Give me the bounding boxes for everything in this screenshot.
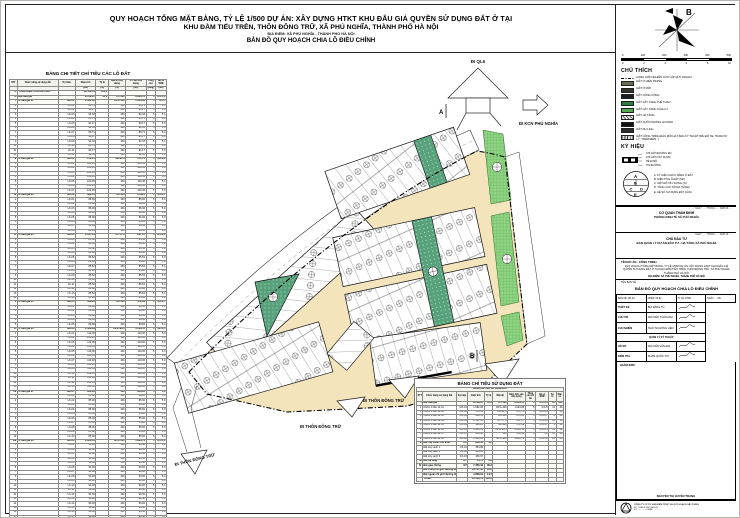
legend-label: ĐẤT HẠ TẦNG: [637, 114, 655, 117]
scale-tick: 500: [727, 54, 731, 57]
legend-label: ĐẤT CÔNG TRÌNH ĐẦU MỐI HẠ TẦNG KỸ THUẬT …: [637, 135, 733, 142]
section-marker-a: A: [439, 110, 444, 116]
company-contact: ĐT: ............ - EMAIL: ............: [634, 509, 699, 512]
header-row: STTChức năng sử dụng đấtKý hiệuDiện tích…: [10, 80, 167, 87]
plot-balloon-icon: A B C D E: [621, 169, 651, 199]
north-arrow: B: [649, 7, 705, 53]
scale-tick: 6: [686, 62, 687, 65]
label-thon-2: ĐI THÔN ĐÔNG TRỮ: [300, 424, 342, 429]
legend-swatch: [621, 108, 634, 113]
company-logo: [620, 502, 632, 514]
scale-bar: 0100200300400500 0246810: [621, 54, 732, 65]
signature-mark: [676, 323, 706, 333]
director-block: GIÁM ĐỐC NGUYỄN THỊ HUYỀN TRANG: [616, 362, 736, 500]
legend-label: ĐẤT QUỐC PHÒNG AN NINH: [637, 121, 673, 124]
legend-item-4: ĐẤT CÔNG CỘNG: [621, 94, 732, 99]
svg-text:B: B: [686, 8, 692, 17]
scale-tick: 0: [622, 54, 623, 57]
project-block: TÊN ĐỒ ÁN - CÔNG TRÌNH QUY HOẠCH TỔNG MẶ…: [616, 258, 736, 279]
scale-tick: 0: [622, 62, 623, 65]
land-use-table-section: BẢNG CHỈ TIÊU SỬ DỤNG ĐẤT BẢNG CHỈ TIÊU …: [414, 378, 566, 484]
land-use-table: BẢNG CHỈ TIÊU SỬ DỤNG ĐẤTSTTChức năng sử…: [416, 387, 564, 482]
title-banner: QUY HOẠCH TỔNG MẶT BẰNG, TỶ LỆ 1/500 DỰ …: [6, 5, 616, 53]
signature-mark: [676, 303, 706, 313]
legend-item-7: ĐẤT HẠ TẦNG: [621, 114, 732, 119]
drawing-name: BẢN ĐỒ QUY HOẠCH CHIA LÔ ĐIỀU CHỈNH: [621, 286, 732, 291]
company-block: CÔNG TY CP TƯ VẤN KIẾN TRÚC VÀ QUY HOẠCH…: [616, 500, 736, 514]
balloon-symbol: A B C D E A. KÝ HIỆU CHỨC NĂNG Ô ĐẤTB. D…: [621, 169, 732, 199]
legend-swatch: [621, 81, 634, 86]
legend-label: ĐẤT Ở MỚI: [637, 87, 651, 90]
legend-swatch: [621, 128, 634, 133]
road-symbol: CHỈ GIỚI ĐƯỜNG ĐỎCHỈ GIỚI XÂY DỰNGHÈ ĐI …: [621, 152, 732, 167]
road-section-icon: [621, 153, 643, 167]
scale-tick: 8: [707, 62, 708, 65]
legend-item-6: ĐẤT CÂY XANH CÁCH LY: [621, 108, 732, 113]
legend-item-1: RANH GIỚI NGHIÊN CỨU LẬP QUY HOẠCH: [621, 76, 732, 80]
balloon-symbol-label: D. TẦNG CAO TỐI ĐA (TẦNG): [654, 186, 693, 190]
scale-tick: 2: [643, 62, 644, 65]
project-header: TÊN ĐỒ ÁN - CÔNG TRÌNH: [621, 260, 732, 264]
legend-swatch: [621, 135, 634, 140]
signature-row: HỒ SƠNGUYỄN VĂN ĐẠI: [617, 341, 736, 351]
stamp2-name: BAN QUẢN LÝ DỰ ÁN ĐẦU TƯ - HẠ TẦNG XÃ PH…: [621, 241, 732, 245]
svg-text:B: B: [634, 181, 637, 186]
legend-item-9: ĐẤT DU LỊCH: [621, 128, 732, 133]
tech-header-row: QUẢN LÝ KỸ THUẬT: [617, 333, 736, 341]
signature-row: CHỦ NHIỆMTHÁI THỊ HỒNG LIÊN: [617, 323, 736, 333]
legend-label: ĐẤT CÔNG CỘNG: [637, 94, 660, 97]
signature-row: CHỦ TRÌNGUYỄN TUẤN ANH: [617, 313, 736, 323]
meta-row: BẢN VẼ: QH-04GHÉP: 20-04TỶ LỆ: 1/500NGÀY…: [617, 295, 736, 303]
header-row: STTChức năng sử dụng đấtKý hiệuDiện tích…: [417, 392, 564, 402]
right-panel: B 0100200300400500 0246810 CHÚ THÍCH RAN…: [615, 5, 736, 515]
balloon-symbol-label: E. HỆ SỐ SỬ DỤNG ĐẤT (LẦN): [654, 191, 693, 195]
scale-tick: 10: [728, 62, 731, 65]
legend-item-5: ĐẤT CÂY XANH THỂ THAO: [621, 101, 732, 106]
signature-row: KIỂM TRAPHẠM QUỐC TUY: [617, 351, 736, 361]
scale-tick: 100: [641, 54, 645, 57]
signature-mark: [676, 341, 706, 351]
legend-label: ĐẤT CÂY XANH CÁCH LY: [637, 108, 669, 111]
plan-sheet: QUY HOẠCH TỔNG MẶT BẰNG, TỶ LỆ 1/500 DỰ …: [0, 0, 740, 518]
legend-swatch: [621, 78, 634, 80]
road-symbol-label: TIM ĐƯỜNG: [646, 164, 671, 168]
svg-text:D: D: [640, 187, 643, 192]
project-text: QUY HOẠCH TỔNG MẶT BẰNG, TỶ LỆ 1/500 DỰ …: [621, 265, 732, 275]
scale-tick: 4: [664, 62, 665, 65]
director-name: NGUYỄN THỊ HUYỀN TRANG: [617, 494, 735, 498]
scale-tick: 400: [705, 54, 709, 57]
scale-tick: 200: [662, 54, 666, 57]
symbols-title: KÝ HIỆU: [621, 144, 732, 150]
legend-item-8: ĐẤT QUỐC PHÒNG AN NINH: [621, 121, 732, 126]
legend-swatch: [621, 94, 634, 99]
signature-row: THIẾT KẾBÙI ĐĂNG TÚ: [617, 303, 736, 313]
stamp-investor: .........., NGÀY ...... THÁNG ...... NĂM…: [616, 232, 736, 258]
data-row: TỔNG:19.536,51100,0: [417, 477, 564, 481]
legend-label: ĐẤT Ở HIỆN TRẠNG: [637, 80, 663, 83]
legend-list: RANH GIỚI NGHIÊN CỨU LẬP QUY HOẠCHĐẤT Ở …: [621, 76, 732, 142]
drawing-name-block: TÊN BẢN VẼ BẢN ĐỒ QUY HOẠCH CHIA LÔ ĐIỀU…: [616, 279, 736, 294]
label-ql6: ĐI QL6: [471, 59, 486, 64]
title-line-3: ĐỊA ĐIỂM: XÃ PHÚ NGHĨA - THÀNH PHỐ HÀ NỘ…: [267, 32, 354, 36]
legend-swatch: [621, 115, 634, 120]
land-use-table-title: BẢNG CHỈ TIÊU SỬ DỤNG ĐẤT: [416, 381, 564, 386]
stamp-approval: .........., NGÀY ...... THÁNG ...... NĂM…: [616, 206, 736, 232]
ql6-junction: [448, 68, 508, 130]
legend-label: ĐẤT CÂY XANH THỂ THAO: [637, 101, 671, 104]
project-place: ĐỊA ĐIỂM: XÃ PHÚ NGHĨA, THÀNH PHỐ HÀ NỘI: [621, 275, 732, 278]
lot-detail-table: STTChức năng sử dụng đấtKý hiệuDiện tích…: [9, 79, 167, 518]
label-thon-1: ĐI THÔN ĐÔNG TRỮ: [363, 398, 405, 403]
signature-mark: [676, 351, 706, 361]
label-kcn: ĐI KCN PHÚ NGHĨA: [519, 121, 558, 126]
director-label: GIÁM ĐỐC: [620, 363, 732, 367]
legend-item-10: ĐẤT CÔNG TRÌNH ĐẦU MỐI HẠ TẦNG KỸ THUẬT …: [621, 135, 732, 142]
legend-swatch: [621, 122, 634, 127]
lot-detail-table-title: BẢNG CHI TIẾT CHỈ TIÊU CÁC LÔ ĐẤT: [9, 71, 167, 76]
section-marker-b: B: [470, 354, 475, 360]
legend-label: RANH GIỚI NGHIÊN CỨU LẬP QUY HOẠCH: [637, 76, 692, 79]
signature-mark: [676, 313, 706, 323]
legend-swatch: [621, 101, 634, 106]
legend-swatch: [621, 88, 634, 93]
svg-text:C: C: [630, 187, 633, 192]
svg-text:E: E: [634, 192, 637, 197]
title-line-2: KHU ĐẦM TIẾU TRÊN, THÔN ĐÔNG TRỮ, XÃ PHÚ…: [184, 24, 439, 31]
signature-table: BẢN VẼ: QH-04GHÉP: 20-04TỶ LỆ: 1/500NGÀY…: [616, 294, 736, 362]
legend-item-3: ĐẤT Ở MỚI: [621, 87, 732, 92]
title-line-1: QUY HOẠCH TỔNG MẶT BẰNG, TỶ LỆ 1/500 DỰ …: [110, 14, 512, 23]
title-line-4: BẢN ĐỒ QUY HOẠCH CHIA LÔ ĐIỀU CHỈNH: [247, 37, 376, 44]
lot-detail-table-section: BẢNG CHI TIẾT CHỈ TIÊU CÁC LÔ ĐẤT STTChứ…: [9, 57, 167, 509]
legend-title: CHÚ THÍCH: [621, 68, 732, 74]
kcn-arrow: [523, 95, 548, 115]
drawing-header: TÊN BẢN VẼ: [621, 281, 732, 284]
legend-item-2: ĐẤT Ở HIỆN TRẠNG: [621, 80, 732, 85]
legend-label: ĐẤT DU LỊCH: [637, 128, 654, 131]
scale-tick: 300: [684, 54, 688, 57]
